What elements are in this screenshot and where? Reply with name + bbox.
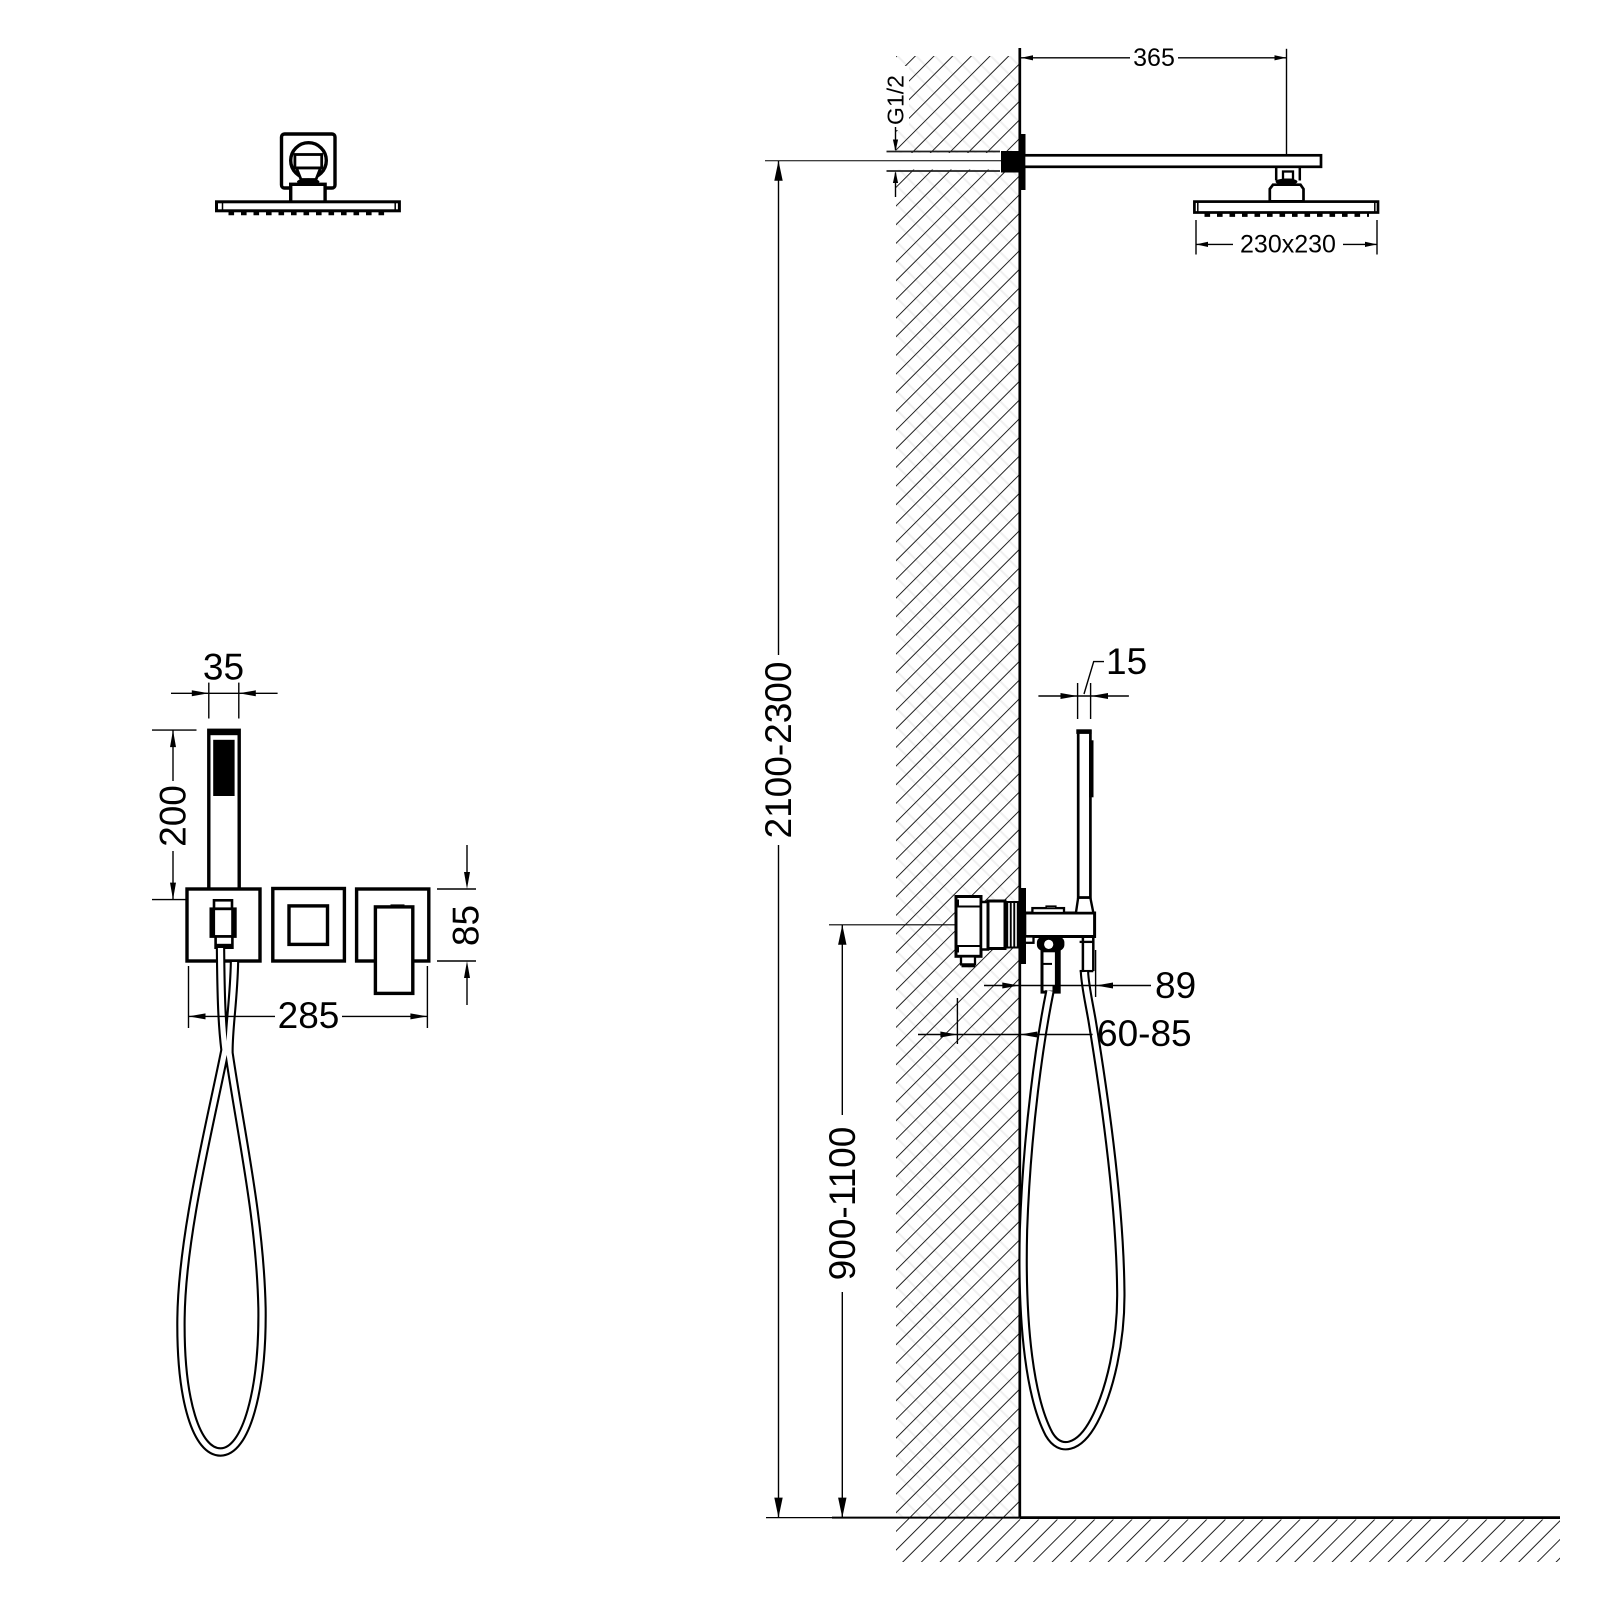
svg-text:G1/2: G1/2 <box>883 75 909 125</box>
svg-text:35: 35 <box>203 647 244 688</box>
svg-text:60-85: 60-85 <box>1097 1013 1192 1054</box>
svg-text:85: 85 <box>446 905 487 946</box>
svg-text:285: 285 <box>278 995 340 1036</box>
svg-text:89: 89 <box>1155 965 1196 1006</box>
svg-text:15: 15 <box>1106 641 1147 682</box>
svg-text:200: 200 <box>153 785 194 847</box>
svg-text:2100-2300: 2100-2300 <box>758 662 799 839</box>
svg-text:230x230: 230x230 <box>1240 230 1336 258</box>
svg-text:900-1100: 900-1100 <box>822 1127 863 1281</box>
svg-text:365: 365 <box>1133 44 1175 72</box>
